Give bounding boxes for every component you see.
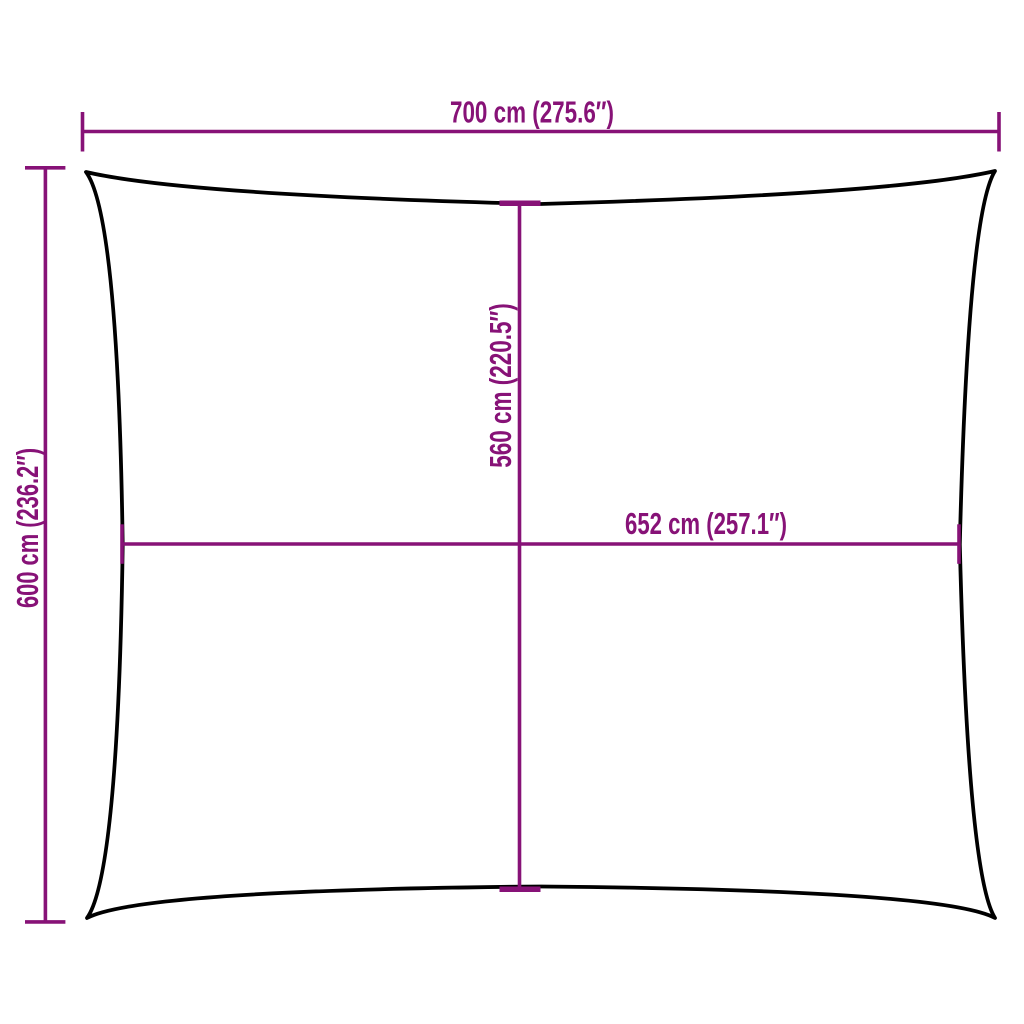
svg-text:600 cm (236.2″): 600 cm (236.2″): [11, 448, 45, 608]
svg-text:700 cm (275.6″): 700 cm (275.6″): [450, 96, 614, 130]
svg-text:652 cm (257.1″): 652 cm (257.1″): [625, 507, 787, 541]
svg-text:560 cm (220.5″): 560 cm (220.5″): [484, 303, 518, 468]
